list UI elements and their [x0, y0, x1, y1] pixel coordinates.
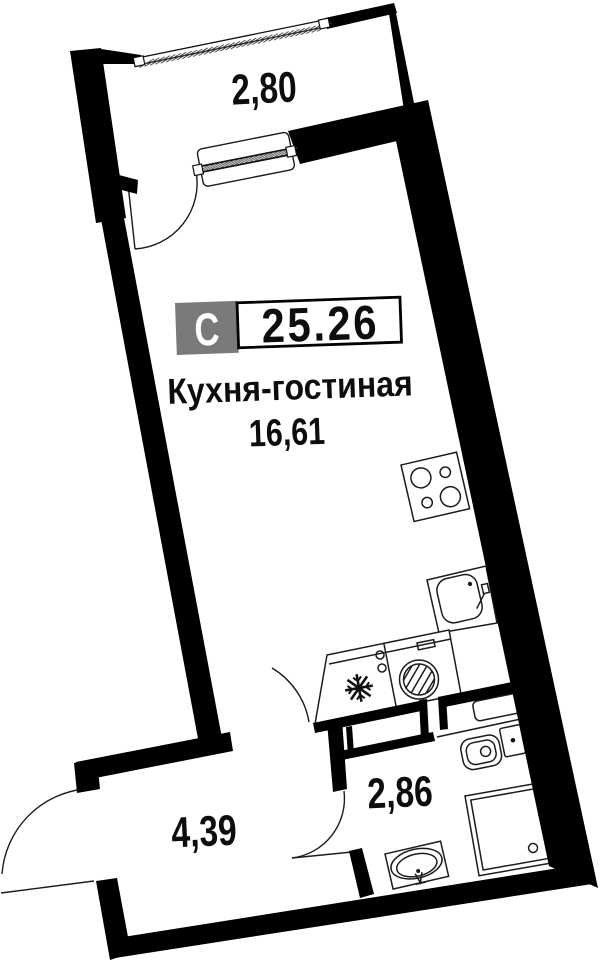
svg-text:25.26: 25.26: [261, 295, 380, 353]
svg-text:С: С: [194, 303, 221, 356]
svg-text:4,39: 4,39: [170, 807, 237, 858]
svg-text:2,80: 2,80: [230, 63, 298, 114]
svg-text:2,86: 2,86: [366, 768, 433, 819]
svg-text:Кухня-гостиная: Кухня-гостиная: [167, 364, 414, 413]
svg-text:16,61: 16,61: [248, 411, 325, 456]
